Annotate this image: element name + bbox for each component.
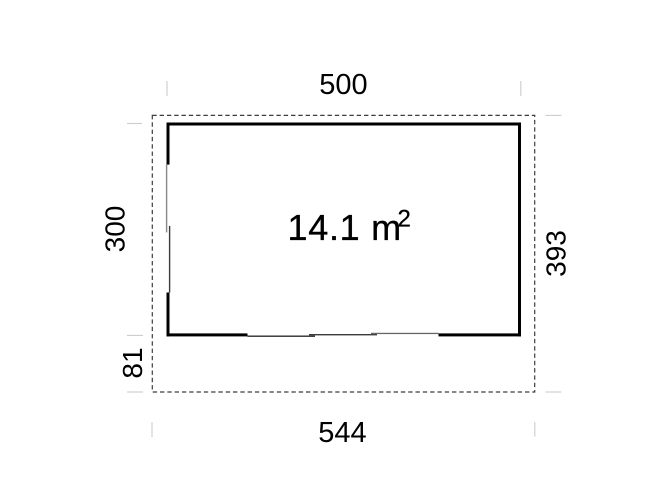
svg-text:81: 81	[117, 347, 148, 378]
svg-text:2: 2	[398, 205, 411, 232]
svg-text:393: 393	[541, 230, 572, 277]
svg-text:300: 300	[100, 206, 131, 253]
svg-text:544: 544	[318, 417, 366, 449]
svg-text:14.1 m: 14.1 m	[288, 207, 402, 248]
svg-text:500: 500	[319, 69, 367, 101]
